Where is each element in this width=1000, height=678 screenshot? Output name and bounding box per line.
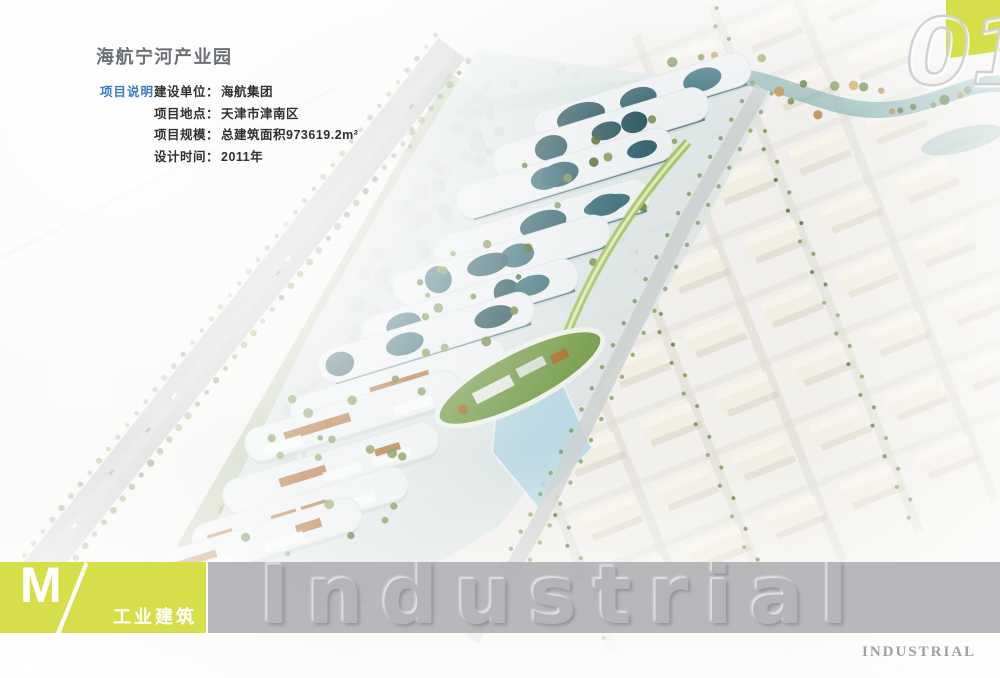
info-row-value: 天津市津南区 [221, 107, 299, 121]
info-row-builder: 建设单位：海航集团 [154, 82, 358, 104]
info-row-value: 总建筑面积973619.2m² [221, 128, 358, 142]
watermark-caps: INDUSTRIAL [862, 644, 976, 661]
category-name: 工业建筑 [113, 603, 197, 629]
info-row-value: 2011年 [221, 150, 263, 164]
project-info: 建设单位：海航集团 项目地点：天津市津南区 项目规模：总建筑面积973619.2… [154, 82, 358, 168]
project-info-label: 项目说明 [100, 82, 154, 104]
info-row-label: 项目规模： [154, 128, 219, 142]
watermark-embossed: Industrial [260, 562, 865, 633]
info-row-year: 设计时间：2011年 [154, 147, 358, 169]
category-block: M 工业建筑 [0, 562, 206, 633]
page-number-outline: 01 01 [856, 0, 1000, 112]
footer-gray-band: Industrial [208, 562, 1000, 633]
portfolio-page: 海航宁河产业园 项目说明 建设单位：海航集团 项目地点：天津市津南区 项目规模：… [0, 0, 1000, 678]
info-row-location: 项目地点：天津市津南区 [154, 104, 358, 126]
info-row-label: 项目地点： [154, 107, 219, 121]
page-number: 01 [896, 0, 1000, 106]
info-row-value: 海航集团 [221, 85, 273, 99]
category-letter: M [20, 562, 62, 612]
info-row-label: 设计时间： [154, 150, 219, 164]
info-row-label: 建设单位： [154, 85, 219, 99]
info-row-scale: 项目规模：总建筑面积973619.2m² [154, 125, 358, 147]
page-title: 海航宁河产业园 [96, 43, 233, 69]
